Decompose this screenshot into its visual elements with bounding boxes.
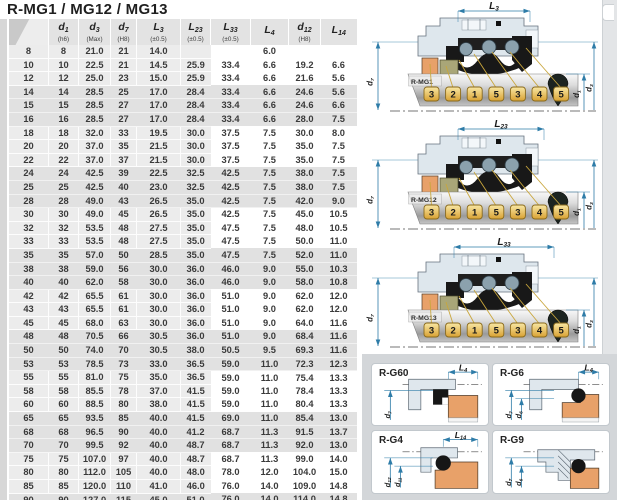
callout-4: 4 <box>532 323 547 337</box>
table-cell: 42.5 <box>211 180 251 194</box>
table-cell: 43 <box>9 303 49 317</box>
table-cell: 78.5 <box>79 357 111 371</box>
table-cell: 50.0 <box>289 235 321 249</box>
table-cell: 28.4 <box>181 85 211 99</box>
table-cell: 70 <box>49 439 79 453</box>
table-cell: 59.0 <box>211 384 251 398</box>
spring-coil <box>460 43 473 56</box>
column-header <box>9 19 49 45</box>
table-cell: 7.5 <box>251 153 289 167</box>
table-row: 202037.03521.530.037.57.535.07.5 <box>9 140 357 154</box>
table-cell: 68 <box>49 425 79 439</box>
table-row: 181832.03319.530.037.57.530.08.0 <box>9 126 357 140</box>
table-cell: 24 <box>49 167 79 181</box>
column-header: L14 <box>321 19 357 45</box>
dimension-label: d7 <box>504 478 514 486</box>
svg-text:5: 5 <box>558 326 564 337</box>
table-cell: 85.4 <box>289 412 321 426</box>
table-cell: 45 <box>9 316 49 330</box>
table-row: 8585120.011041.046.076.014.0109.014.8 <box>9 480 357 494</box>
table-cell: 22.5 <box>137 167 181 181</box>
table-cell: 65.5 <box>79 289 111 303</box>
table-cell: 28 <box>49 194 79 208</box>
table-cell: 11.0 <box>321 248 357 262</box>
table-cell: 110 <box>111 480 137 494</box>
table-cell: 56 <box>111 262 137 276</box>
panel-r-g9: R-G9 d7 d6 <box>492 430 610 494</box>
svg-text:2: 2 <box>450 326 455 337</box>
table-cell: 76.0 <box>211 493 251 500</box>
table-cell: 37.0 <box>79 153 111 167</box>
column-header: d1(h6) <box>49 19 79 45</box>
table-cell: 68.7 <box>211 425 251 439</box>
table-cell: 32 <box>9 221 49 235</box>
table-cell: 33.4 <box>211 72 251 86</box>
table-cell: 28.4 <box>181 112 211 126</box>
table-cell: 33.4 <box>211 99 251 113</box>
table-row: 404062.05830.036.046.09.058.010.8 <box>9 276 357 290</box>
detail-cross-section: L4 d7 <box>372 364 488 425</box>
table-cell: 12 <box>49 72 79 86</box>
table-cell: 11.0 <box>321 235 357 249</box>
table-cell: 72.3 <box>289 357 321 371</box>
callout-2: 2 <box>446 205 461 219</box>
table-cell: 16 <box>9 112 49 126</box>
page-title: R-MG1 / MG12 / MG13 <box>7 1 168 18</box>
table-cell: 68.4 <box>289 330 321 344</box>
table-cell: 17.0 <box>137 112 181 126</box>
table-cell: 19.5 <box>137 126 181 140</box>
table-cell: 32.5 <box>181 180 211 194</box>
table-cell: 40.0 <box>137 425 181 439</box>
callout-4: 4 <box>532 87 547 101</box>
table-cell: 90 <box>49 493 79 500</box>
table-cell: 18 <box>49 126 79 140</box>
table-cell: 30.0 <box>137 276 181 290</box>
table-cell: 38 <box>9 262 49 276</box>
table-cell: 85 <box>9 480 49 494</box>
table-cell: 13.0 <box>321 412 357 426</box>
table-cell: 99.0 <box>289 452 321 466</box>
table-cell: 35.0 <box>181 248 211 262</box>
table-cell: 11.6 <box>321 330 357 344</box>
table-cell: 9.0 <box>251 289 289 303</box>
table-cell: 99.5 <box>79 439 111 453</box>
dimension-label: d7 <box>366 314 376 322</box>
table-cell: 78.0 <box>211 466 251 480</box>
dimension-label: d3 <box>585 320 595 328</box>
table-cell: 45 <box>111 208 137 222</box>
table-cell: 41.0 <box>137 480 181 494</box>
table-cell: 37.5 <box>211 126 251 140</box>
table-cell: 80.4 <box>289 398 321 412</box>
table-cell: 75.4 <box>289 371 321 385</box>
table-cell: 9.5 <box>251 344 289 358</box>
table-cell: 33.4 <box>211 58 251 72</box>
table-cell: 15 <box>9 99 49 113</box>
table-cell: 30 <box>9 208 49 222</box>
table-row: 323253.54827.535.047.57.548.010.5 <box>9 221 357 235</box>
table-cell: 41.5 <box>181 398 211 412</box>
table-cell: 38.0 <box>181 344 211 358</box>
oring <box>571 388 585 402</box>
table-cell: 11.3 <box>251 452 289 466</box>
callout-3: 3 <box>510 87 525 101</box>
model-label: R-MG12 <box>411 197 437 204</box>
table-cell: 85 <box>111 412 137 426</box>
table-cell: 11.0 <box>251 412 289 426</box>
svg-text:3: 3 <box>429 90 434 101</box>
callout-2: 2 <box>446 87 461 101</box>
table-cell <box>211 45 251 58</box>
detail-cross-section: L4 d7 d6 <box>493 364 609 425</box>
table-cell: 36.0 <box>181 262 211 276</box>
table-cell: 63 <box>111 316 137 330</box>
detail-cross-section: d7 d6 <box>493 431 609 493</box>
callout-5: 5 <box>489 323 504 337</box>
table-cell: 35.0 <box>181 194 211 208</box>
svg-text:2: 2 <box>450 208 455 219</box>
table-cell: 14 <box>49 85 79 99</box>
table-cell: 97 <box>111 452 137 466</box>
table-cell: 27.5 <box>137 235 181 249</box>
dimension-label: L4 <box>584 364 592 374</box>
table-cell: 59.0 <box>211 371 251 385</box>
table-cell: 70 <box>111 344 137 358</box>
table-cell: 69.0 <box>211 412 251 426</box>
table-cell: 36.5 <box>181 357 211 371</box>
table-cell: 7.5 <box>251 208 289 222</box>
table-row: 333353.54827.535.047.57.550.011.0 <box>9 235 357 249</box>
table-cell: 33.4 <box>211 85 251 99</box>
table-cell: 35.0 <box>181 235 211 249</box>
table-cell: 30.5 <box>137 344 181 358</box>
table-cell: 32.5 <box>181 167 211 181</box>
table-cell: 21.5 <box>137 153 181 167</box>
set-screw <box>496 139 501 144</box>
seal-face <box>440 296 458 311</box>
page-edge-strip <box>602 0 617 354</box>
table-cell <box>181 45 211 58</box>
table-cell: 41.5 <box>181 412 211 426</box>
table-cell: 36.5 <box>181 371 211 385</box>
table-cell: 50 <box>9 344 49 358</box>
callout-5: 5 <box>554 87 569 101</box>
spring-coil <box>460 279 473 292</box>
table-cell: 45.0 <box>289 208 321 222</box>
table-cell: 78 <box>111 384 137 398</box>
table-cell: 90 <box>111 425 137 439</box>
callout-4: 4 <box>532 205 547 219</box>
table-cell: 65 <box>9 412 49 426</box>
table-cell: 40 <box>9 276 49 290</box>
table-cell: 48.0 <box>289 221 321 235</box>
table-cell: 96.5 <box>79 425 111 439</box>
table-cell: 76.0 <box>211 480 251 494</box>
table-row: 353557.05028.535.047.57.552.011.0 <box>9 248 357 262</box>
table-row: 121225.02315.025.933.46.621.65.6 <box>9 72 357 86</box>
table-cell: 5.6 <box>321 72 357 86</box>
table-cell: 114.0 <box>289 493 321 500</box>
table-cell: 30.0 <box>137 316 181 330</box>
table-cell: 48 <box>111 221 137 235</box>
table-cell: 26.5 <box>137 208 181 222</box>
table-cell <box>289 45 321 58</box>
table-row: 707099.59240.048.768.711.392.013.0 <box>9 439 357 453</box>
spring-coil <box>505 158 519 172</box>
table-row: 303049.04526.535.042.57.545.010.5 <box>9 208 357 222</box>
table-cell: 36.0 <box>181 303 211 317</box>
table-cell: 7.5 <box>251 126 289 140</box>
table-cell: 59.0 <box>79 262 111 276</box>
table-cell: 52.0 <box>289 248 321 262</box>
table-cell: 12.0 <box>321 289 357 303</box>
table-cell: 28.4 <box>181 99 211 113</box>
table-cell: 75 <box>49 452 79 466</box>
table-cell: 48 <box>9 330 49 344</box>
spring-coil <box>482 40 496 54</box>
table-cell: 15 <box>49 99 79 113</box>
table-cell: 18 <box>9 126 49 140</box>
table-cell: 38.0 <box>289 167 321 181</box>
table-row: 9090127.011545.051.076.014.0114.014.8 <box>9 493 357 500</box>
table-cell: 7.5 <box>321 140 357 154</box>
table-cell: 12.3 <box>321 357 357 371</box>
table-cell: 68.7 <box>211 439 251 453</box>
table-cell: 47.5 <box>211 235 251 249</box>
table-cell: 48 <box>49 330 79 344</box>
table-cell: 40 <box>49 276 79 290</box>
table-cell: 10 <box>49 58 79 72</box>
table-cell: 7.5 <box>251 194 289 208</box>
table-cell: 78.4 <box>289 384 321 398</box>
table-cell: 13.3 <box>321 371 357 385</box>
svg-text:5: 5 <box>494 208 500 219</box>
page-edge-tab <box>602 4 614 21</box>
table-cell: 28.0 <box>289 112 321 126</box>
table-cell: 81.0 <box>79 371 111 385</box>
table-cell: 43 <box>49 303 79 317</box>
table-cell: 11.3 <box>251 439 289 453</box>
table-cell: 53 <box>9 357 49 371</box>
table-cell <box>321 45 357 58</box>
dimension-label: L14 <box>455 431 467 441</box>
table-row: 252542.54023.032.542.57.538.07.5 <box>9 180 357 194</box>
table-cell: 43 <box>111 194 137 208</box>
table-cell: 7.5 <box>251 248 289 262</box>
table-cell: 66 <box>111 330 137 344</box>
svg-text:3: 3 <box>515 326 520 337</box>
table-cell: 6.6 <box>321 58 357 72</box>
table-cell: 37.5 <box>211 153 251 167</box>
table-cell: 40 <box>111 180 137 194</box>
table-row: 222237.03721.530.037.57.535.07.5 <box>9 153 357 167</box>
table-row: 101022.52114.525.933.46.619.26.6 <box>9 58 357 72</box>
table-cell: 46.0 <box>211 276 251 290</box>
table-cell: 21 <box>111 58 137 72</box>
table-cell: 30.0 <box>137 303 181 317</box>
table-cell: 115 <box>111 493 137 500</box>
table-cell: 27 <box>111 99 137 113</box>
table-cell: 41.2 <box>181 425 211 439</box>
table-cell: 30.0 <box>137 262 181 276</box>
table-cell: 21.5 <box>137 140 181 154</box>
table-cell: 55.0 <box>289 262 321 276</box>
table-cell: 42.0 <box>289 194 321 208</box>
table-row: 555581.07535.036.559.011.075.413.3 <box>9 371 357 385</box>
callout-1: 1 <box>467 323 482 337</box>
table-cell: 5.6 <box>321 85 357 99</box>
dimension-table: d1(h6)d3(Max)d7(H8)L3(±0.5)L23(±0.5)L33(… <box>8 19 357 500</box>
table-cell: 69.3 <box>289 344 321 358</box>
table-cell: 21 <box>111 45 137 58</box>
table-cell: 38 <box>49 262 79 276</box>
detail-cross-section: L14 d12 d11 <box>372 431 488 493</box>
table-cell: 7.5 <box>251 221 289 235</box>
table-cell: 62.0 <box>289 289 321 303</box>
table-cell: 68.0 <box>79 316 111 330</box>
table-cell: 28.5 <box>79 85 111 99</box>
table-cell: 93.5 <box>79 412 111 426</box>
table-cell: 6.6 <box>251 112 289 126</box>
table-cell: 33.4 <box>211 112 251 126</box>
table-cell: 7.5 <box>251 235 289 249</box>
table-cell: 25 <box>111 85 137 99</box>
table-row: 484870.56630.536.051.09.068.411.6 <box>9 330 357 344</box>
svg-text:1: 1 <box>472 90 478 101</box>
callout-3: 3 <box>424 87 439 101</box>
table-cell: 13.3 <box>321 398 357 412</box>
table-cell: 37.5 <box>211 140 251 154</box>
dimension-label: d3 <box>585 202 595 210</box>
table-cell: 55 <box>49 371 79 385</box>
table-cell: 61 <box>111 289 137 303</box>
table-cell: 51.0 <box>211 330 251 344</box>
table-cell: 49.0 <box>79 194 111 208</box>
table-cell: 51.0 <box>181 493 211 500</box>
table-cell: 16 <box>49 112 79 126</box>
dimension-label: d11 <box>393 477 403 487</box>
svg-text:5: 5 <box>494 326 500 337</box>
table-cell: 10.8 <box>321 276 357 290</box>
table-cell: 85.5 <box>79 384 111 398</box>
panel-r-g60: R-G60 L4 d7 <box>371 363 489 426</box>
table-cell: 74.0 <box>79 344 111 358</box>
table-cell: 58.0 <box>289 276 321 290</box>
spring-coil <box>482 276 496 290</box>
table-cell: 42.5 <box>211 167 251 181</box>
table-row: 8080112.010540.048.078.012.0104.015.0 <box>9 466 357 480</box>
table-cell: 127.0 <box>79 493 111 500</box>
table-cell: 51.0 <box>211 303 251 317</box>
table-cell: 12.0 <box>251 466 289 480</box>
table-cell: 112.0 <box>79 466 111 480</box>
detail-panels-section: R-G60 L4 d7 R-G6 L4 d7 d6 R-G4 <box>362 354 617 500</box>
table-cell: 68 <box>9 425 49 439</box>
table-row: 141428.52517.028.433.46.624.65.6 <box>9 85 357 99</box>
table-cell: 40.0 <box>137 439 181 453</box>
table-cell: 32.0 <box>79 126 111 140</box>
table-cell: 11.0 <box>251 384 289 398</box>
table-cell: 55 <box>9 371 49 385</box>
table-cell: 10.5 <box>321 221 357 235</box>
table-row: 424265.56130.036.051.09.062.012.0 <box>9 289 357 303</box>
table-cell: 48.7 <box>181 439 211 453</box>
table-cell: 50.5 <box>211 344 251 358</box>
table-cell: 30.5 <box>137 330 181 344</box>
table-cell: 13.7 <box>321 425 357 439</box>
set-screw <box>496 21 501 26</box>
table-cell: 21.0 <box>79 45 111 58</box>
seal-cross-section: R-MG1 3215345 L3 d7 d1 d3 <box>362 2 600 117</box>
table-cell: 50 <box>49 344 79 358</box>
table-cell: 33.0 <box>137 357 181 371</box>
table-cell: 19.2 <box>289 58 321 72</box>
table-cell: 48.0 <box>181 466 211 480</box>
callout-5: 5 <box>554 205 569 219</box>
set-screw <box>496 257 501 262</box>
table-cell: 90 <box>9 493 49 500</box>
table-cell: 14.5 <box>137 58 181 72</box>
table-cell: 14.8 <box>321 493 357 500</box>
table-cell: 6.6 <box>251 58 289 72</box>
table-cell: 47.5 <box>211 248 251 262</box>
table-cell: 49.0 <box>79 208 111 222</box>
callout-3: 3 <box>510 205 525 219</box>
table-cell: 36.0 <box>181 276 211 290</box>
table-cell: 7.5 <box>321 180 357 194</box>
table-cell: 40.0 <box>137 452 181 466</box>
callout-5: 5 <box>489 87 504 101</box>
table-cell: 14 <box>9 85 49 99</box>
table-cell: 20 <box>9 140 49 154</box>
svg-text:5: 5 <box>494 90 500 101</box>
column-header: d12(H8) <box>289 19 321 45</box>
column-header: L33(±0.5) <box>211 19 251 45</box>
table-cell: 23 <box>111 72 137 86</box>
table-cell: 68.7 <box>211 452 251 466</box>
table-cell: 120.0 <box>79 480 111 494</box>
table-cell: 33 <box>9 235 49 249</box>
table-cell: 24.6 <box>289 85 321 99</box>
table-cell: 7.5 <box>251 140 289 154</box>
table-cell: 20 <box>49 140 79 154</box>
spring-coil <box>505 276 519 290</box>
table-cell: 70.5 <box>79 330 111 344</box>
table-cell: 7.5 <box>321 153 357 167</box>
svg-text:3: 3 <box>515 208 520 219</box>
table-cell: 35.0 <box>181 221 211 235</box>
table-cell: 14.8 <box>321 480 357 494</box>
table-cell: 42 <box>49 289 79 303</box>
table-row: 656593.58540.041.569.011.085.413.0 <box>9 412 357 426</box>
table-cell: 38.0 <box>289 180 321 194</box>
table-cell: 105 <box>111 466 137 480</box>
table-cell: 61 <box>111 303 137 317</box>
oring <box>436 455 451 470</box>
svg-text:3: 3 <box>429 326 434 337</box>
table-cell: 88.5 <box>79 398 111 412</box>
table-cell: 37 <box>111 153 137 167</box>
column-header: L23(±0.5) <box>181 19 211 45</box>
table-cell: 9.0 <box>251 262 289 276</box>
table-cell: 6.0 <box>251 45 289 58</box>
table-cell: 35 <box>9 248 49 262</box>
table-cell: 14.0 <box>251 493 289 500</box>
table-cell: 17.0 <box>137 99 181 113</box>
table-cell: 28.5 <box>79 112 111 126</box>
table-cell: 9.0 <box>251 276 289 290</box>
